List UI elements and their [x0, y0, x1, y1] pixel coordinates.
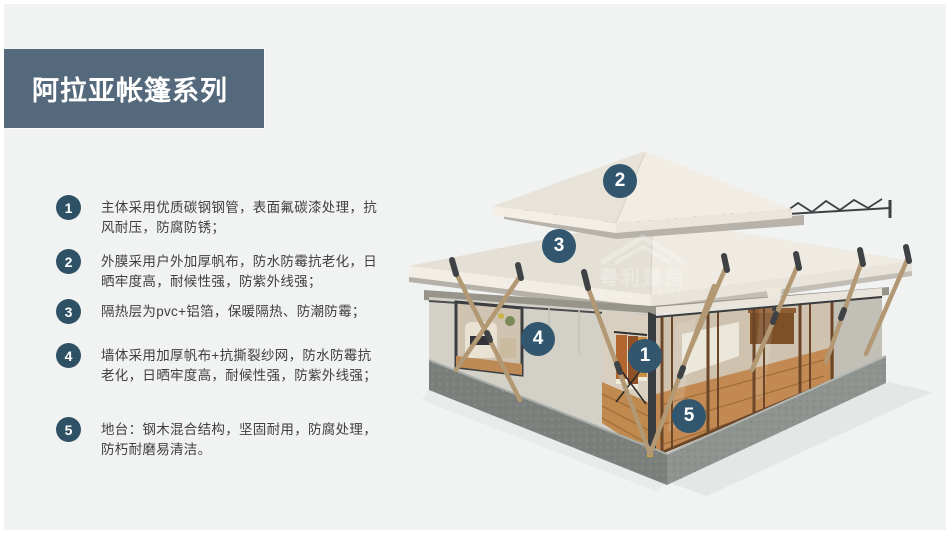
watermark-en-text: YUELI TENT [600, 290, 686, 299]
slide: 阿拉亚帐篷系列 1 主体采用优质碳钢钢管，表面氟碳漆处理，抗风耐压，防腐防锈； … [0, 0, 950, 534]
upper-roof [493, 151, 792, 233]
callout-badge-2: 2 [603, 164, 637, 198]
callout-badge-4: 4 [521, 322, 555, 356]
tent-illustration: 粤利篷房 YUELI TENT [4, 4, 950, 534]
corner-post [648, 312, 656, 456]
callout-badge-3: 3 [542, 229, 576, 263]
callout-badge-1: 1 [628, 339, 662, 373]
watermark-cn-text: 粤利篷房 [599, 266, 687, 289]
callout-badge-5: 5 [672, 399, 706, 433]
